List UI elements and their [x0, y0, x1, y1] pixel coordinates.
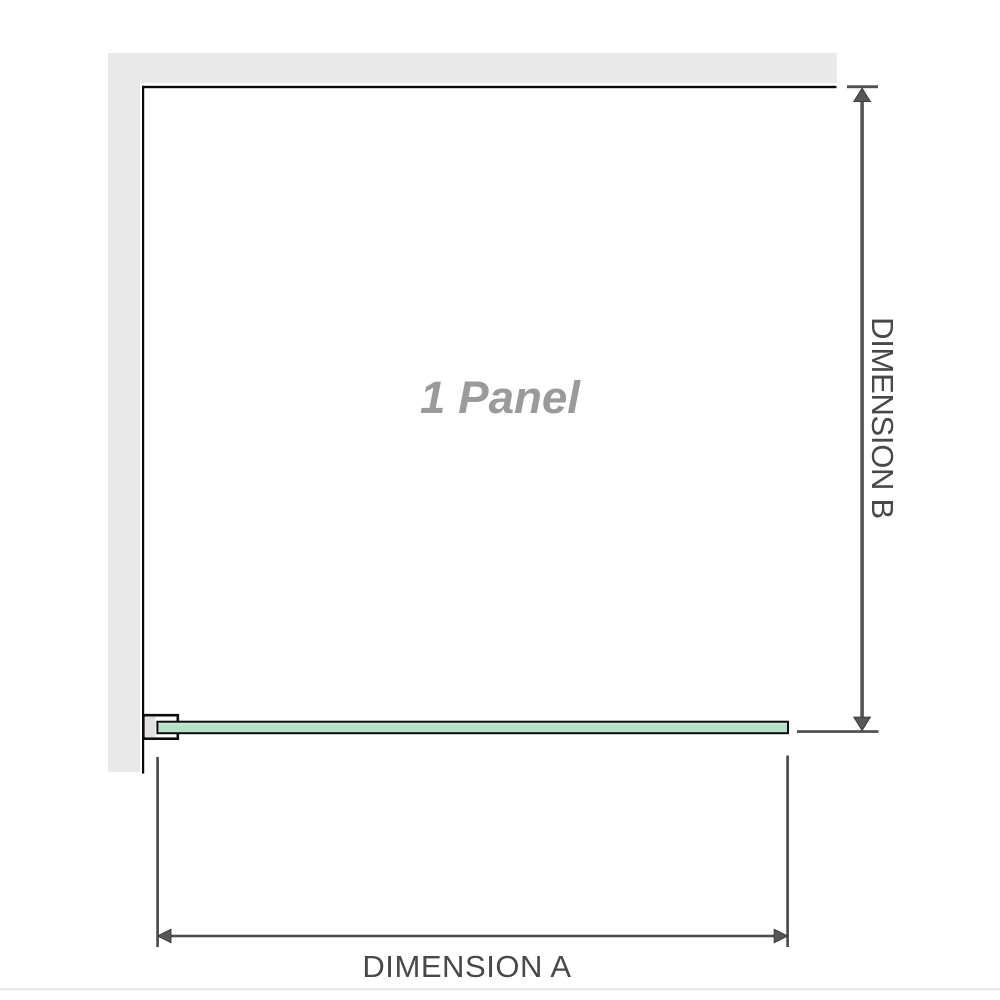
- svg-text:DIMENSION A: DIMENSION A: [362, 949, 571, 984]
- svg-text:DIMENSION B: DIMENSION B: [865, 317, 900, 519]
- svg-text:1 Panel: 1 Panel: [420, 372, 581, 423]
